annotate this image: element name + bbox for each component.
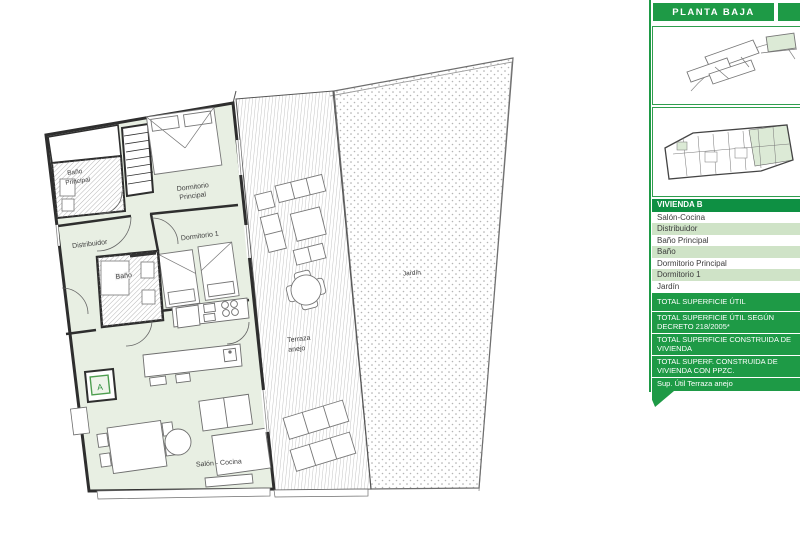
legend-row-bano: Baño — [652, 246, 800, 258]
stool — [150, 376, 167, 386]
sup-util-terraza-anejo: Sup. Útil Terraza anejo — [652, 378, 800, 391]
stool — [176, 373, 191, 383]
floorplan-svg: Baño Principal Dormitorio Principal Dist… — [0, 0, 648, 533]
floor-tab-next — [778, 3, 800, 21]
main-bed — [146, 108, 221, 175]
legend-row-jardin: Jardín — [652, 281, 800, 293]
total-superficie-util-decreto: TOTAL SUPERFICIE ÚTIL SEGÚN DECRETO 218/… — [652, 312, 800, 333]
plan-sheet: Baño Principal Dormitorio Principal Dist… — [0, 0, 800, 533]
kitchen-sink — [204, 303, 216, 312]
site-plan-thumbnail — [652, 26, 800, 105]
room-legend: VIVIENDA B Salón-Cocina Distribuidor Bañ… — [652, 199, 800, 392]
fridge — [176, 305, 200, 328]
key-plan-thumbnail — [652, 107, 800, 197]
floor-tab-planta-baja: PLANTA BAJA — [653, 3, 774, 21]
toilet — [142, 290, 155, 304]
toilet — [62, 199, 74, 211]
legend-row-dormitorio-principal: Dormitorio Principal — [652, 258, 800, 270]
total-superficie-util: TOTAL SUPERFICIE ÚTIL — [652, 293, 800, 312]
legend-unit-header: VIVIENDA B — [652, 199, 800, 212]
label-garden: Jardín — [403, 269, 422, 277]
legend-row-distribuidor: Distribuidor — [652, 223, 800, 235]
bathroom — [97, 251, 163, 327]
total-superficie-construida: TOTAL SUPERFICIE CONSTRUIDA DE VIVIENDA — [652, 334, 800, 355]
bottom-ledge-right — [274, 489, 368, 497]
legend-room-rows: Salón-Cocina Distribuidor Baño Principal… — [652, 212, 800, 293]
legend-row-salon-cocina: Salón-Cocina — [652, 212, 800, 224]
legend-row-bano-principal: Baño Principal — [652, 235, 800, 247]
storage — [70, 407, 89, 435]
total-superficie-construida-ppzc: TOTAL SUPERF. CONSTRUIDA DE VIVIENDA CON… — [652, 356, 800, 377]
coffee-table — [165, 429, 191, 455]
legend-tail-wedge — [652, 391, 674, 407]
main-bathroom — [52, 156, 125, 218]
sidebar-border-line — [649, 0, 651, 392]
wardrobe — [122, 124, 153, 196]
sink — [141, 262, 154, 278]
legend-row-dormitorio-1: Dormitorio 1 — [652, 269, 800, 281]
